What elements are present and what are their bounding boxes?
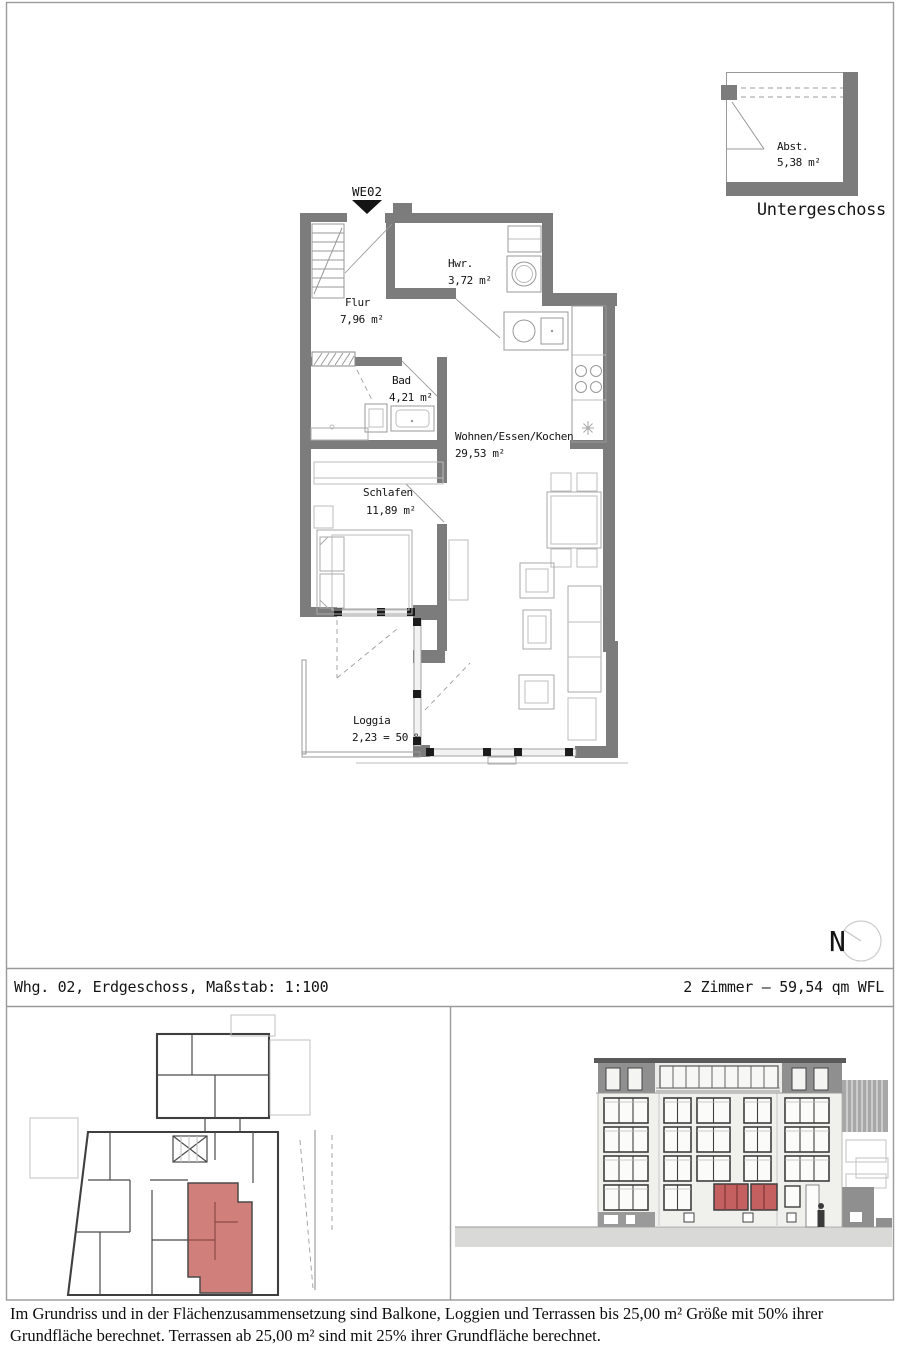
bedroom-furniture [314,462,443,614]
entrance-arrow-icon [352,200,382,214]
room-label-bad: Bad [392,374,411,387]
title-left: Whg. 02, Erdgeschoss, Maßstab: 1:100 [14,971,514,1003]
elevation-highlight-windows [714,1184,777,1210]
site-highlight-unit [188,1183,252,1293]
room-area-flur: 7,96 m² [340,313,384,326]
room-labels: Flur 7,96 m² Hwr. 3,72 m² Bad 4,21 m² Wo… [340,257,573,744]
bathroom-fixtures [311,370,434,440]
footnote-line-1: Im Grundriss und in der Flächenzusammens… [10,1303,888,1325]
utility-appliances [507,226,541,292]
room-area-wohnen: 29,53 m² [455,447,505,460]
basement-room-label: Abst. [777,140,808,153]
footnote-line-2: Grundfläche berechnet. Terrassen ab 25,0… [10,1325,888,1347]
footnote: Im Grundriss und in der Flächenzusammens… [10,1303,888,1346]
room-area-schlafen: 11,89 m² [366,504,416,517]
room-area-bad: 4,21 m² [389,391,433,404]
staircase [312,224,344,298]
north-label: N [829,925,846,958]
room-area-hwr: 3,72 m² [448,274,492,287]
unit-marker: WE02 [352,184,382,214]
installation-shaft [312,352,355,366]
building-elevation [455,1058,892,1247]
room-label-wohnen: Wohnen/Essen/Kochen [455,430,573,443]
neighbor-building [842,1080,892,1227]
unit-marker-label: WE02 [352,184,382,199]
person-silhouette [818,1203,825,1227]
site-stairwell [173,1136,207,1162]
main-floor-plan: WE02 [300,184,628,764]
fridge-snowflake-icon [582,421,594,435]
plan-sheet: Abst. 5,38 m² Untergeschoss WE02 [0,0,900,1350]
basement-room-area: 5,38 m² [777,156,821,169]
room-area-loggia: 2,23 = 50 % [352,731,421,744]
north-compass: N [829,921,881,961]
main-facade [596,1093,844,1227]
living-room-furniture [449,473,601,740]
sheet-drawing: Abst. 5,38 m² Untergeschoss WE02 [0,0,900,1350]
room-label-schlafen: Schlafen [363,486,413,499]
setback-floor [598,1063,842,1093]
basement-plan: Abst. 5,38 m² Untergeschoss [721,72,886,220]
room-label-hwr: Hwr. [448,257,473,270]
room-label-loggia: Loggia [353,714,390,727]
site-plan [30,1015,332,1295]
basement-caption: Untergeschoss [757,200,886,220]
room-label-flur: Flur [345,296,371,309]
kitchen-fixtures [504,306,606,442]
title-right: 2 Zimmer – 59,54 qm WFL [464,971,884,1003]
